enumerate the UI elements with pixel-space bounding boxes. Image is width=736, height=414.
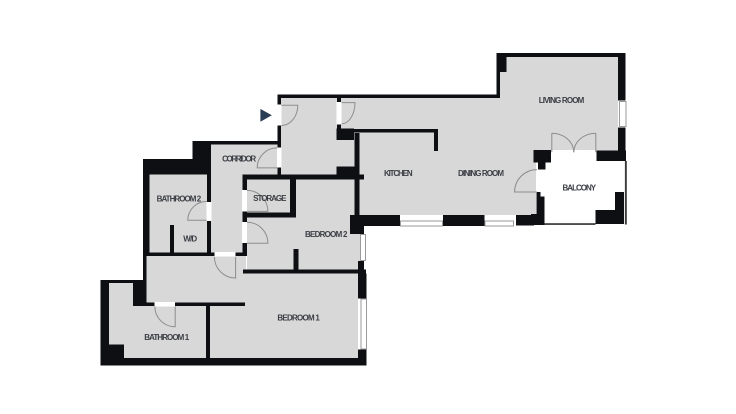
svg-text:BALCONY: BALCONY <box>563 183 597 192</box>
svg-text:KITCHEN: KITCHEN <box>384 169 413 178</box>
svg-text:DINING ROOM: DINING ROOM <box>458 169 504 178</box>
svg-text:CORRIDOR: CORRIDOR <box>222 154 256 163</box>
svg-text:LIVING ROOM: LIVING ROOM <box>539 96 585 105</box>
svg-text:BATHROOM 1: BATHROOM 1 <box>144 333 190 342</box>
svg-text:BATHROOM 2: BATHROOM 2 <box>157 195 202 204</box>
svg-text:W/D: W/D <box>183 235 197 244</box>
svg-text:STORAGE: STORAGE <box>253 194 287 203</box>
svg-text:BEDROOM 2: BEDROOM 2 <box>305 230 348 239</box>
svg-text:BEDROOM 1: BEDROOM 1 <box>277 314 320 323</box>
